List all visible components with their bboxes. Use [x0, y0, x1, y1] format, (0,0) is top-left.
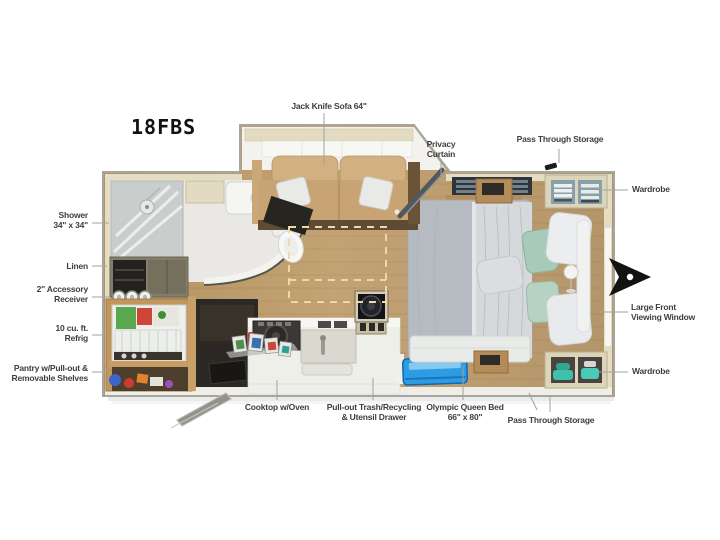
label-shower: Shower 34" x 34" — [0, 210, 88, 230]
label-pass-through-storage-bottom: Pass Through Storage — [491, 415, 611, 425]
wardrobe-bottom-unit — [545, 352, 607, 388]
label-pantry: Pantry w/Pull-out & Removable Shelves — [0, 363, 88, 383]
label-front-window: Large Front Viewing Window — [631, 302, 695, 322]
label-pass-through-storage-top: Pass Through Storage — [500, 134, 620, 144]
hitch-icon — [609, 258, 651, 296]
shower — [111, 181, 183, 258]
sink — [301, 330, 356, 375]
speaker — [355, 291, 388, 334]
floorplan-image: 18FBS Jack Knife Sofa 64" Privacy Curtai… — [0, 0, 720, 540]
label-wardrobe-top: Wardrobe — [632, 184, 670, 194]
jack-knife-sofa — [252, 156, 420, 235]
wardrobe-top-unit — [545, 175, 607, 208]
pantry — [108, 361, 190, 391]
label-wardrobe-bottom: Wardrobe — [632, 366, 670, 376]
model-number: 18FBS — [131, 116, 196, 138]
label-linen: Linen — [0, 261, 88, 271]
label-refrigerator: 10 cu. ft. Refrig — [0, 323, 88, 343]
pass-through-marker — [544, 163, 557, 171]
label-jack-knife-sofa: Jack Knife Sofa 64" — [269, 101, 389, 111]
divider-wall — [188, 296, 196, 391]
bathroom-cabinet — [186, 181, 224, 203]
front-window-glass — [605, 228, 611, 346]
label-accessory-receiver: 2" Accessory Receiver — [0, 284, 88, 304]
label-privacy-curtain: Privacy Curtain — [411, 139, 471, 159]
floorplan-art — [0, 0, 720, 540]
